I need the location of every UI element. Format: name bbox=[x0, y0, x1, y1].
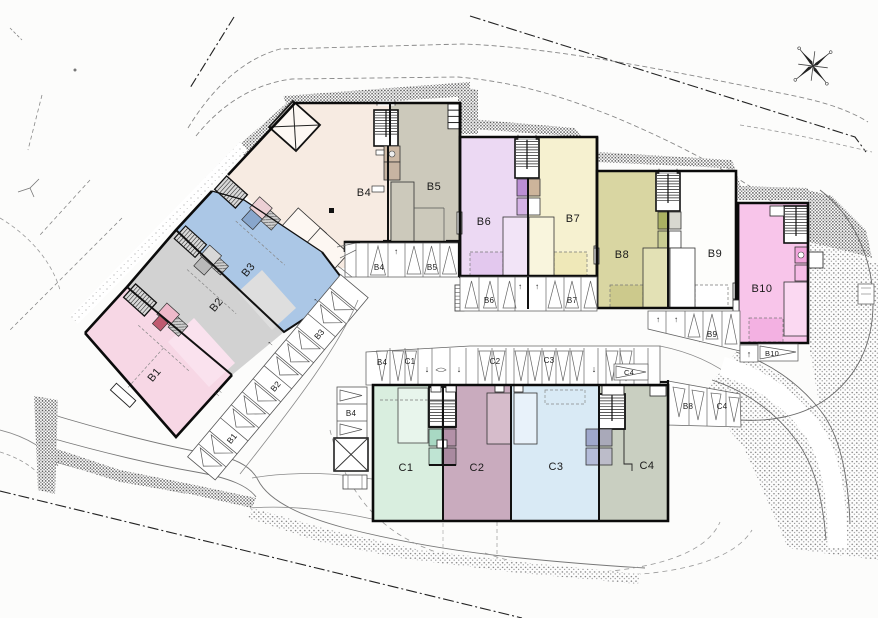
svg-text:B7: B7 bbox=[567, 296, 578, 305]
svg-text:↑: ↑ bbox=[656, 315, 660, 324]
svg-text:B4: B4 bbox=[357, 187, 371, 199]
svg-text:C1: C1 bbox=[405, 357, 416, 366]
svg-text:C3: C3 bbox=[548, 461, 563, 473]
svg-text:B7: B7 bbox=[566, 213, 580, 225]
svg-text:B9: B9 bbox=[707, 330, 718, 339]
svg-text:B9: B9 bbox=[708, 248, 722, 260]
svg-text:B4: B4 bbox=[377, 358, 388, 367]
svg-text:↑: ↑ bbox=[518, 282, 522, 291]
svg-text:C1: C1 bbox=[398, 462, 413, 474]
svg-text:B5: B5 bbox=[427, 263, 438, 272]
svg-text:B6: B6 bbox=[477, 216, 491, 228]
svg-text:B4: B4 bbox=[346, 409, 357, 418]
svg-text:↓: ↓ bbox=[592, 364, 597, 374]
svg-text:C4: C4 bbox=[717, 402, 728, 411]
svg-text:B5: B5 bbox=[427, 181, 441, 193]
svg-text:↓: ↓ bbox=[425, 364, 430, 374]
svg-text:↑: ↑ bbox=[747, 349, 752, 359]
svg-text:C2: C2 bbox=[469, 462, 484, 474]
svg-text:↑: ↑ bbox=[535, 282, 539, 291]
svg-text:B10: B10 bbox=[765, 349, 779, 358]
svg-text:B8: B8 bbox=[683, 402, 694, 411]
svg-text:C3: C3 bbox=[544, 356, 555, 365]
svg-text:↓: ↓ bbox=[457, 364, 462, 374]
svg-text:C2: C2 bbox=[490, 357, 501, 366]
svg-text:B8: B8 bbox=[615, 249, 629, 261]
svg-text:↑: ↑ bbox=[674, 315, 678, 324]
svg-text:B10: B10 bbox=[751, 283, 772, 295]
svg-text:↑: ↑ bbox=[394, 247, 398, 256]
svg-text:B6: B6 bbox=[484, 296, 495, 305]
svg-text:C4: C4 bbox=[639, 460, 654, 472]
svg-text:C4: C4 bbox=[624, 368, 634, 377]
svg-text:B4: B4 bbox=[374, 263, 385, 272]
